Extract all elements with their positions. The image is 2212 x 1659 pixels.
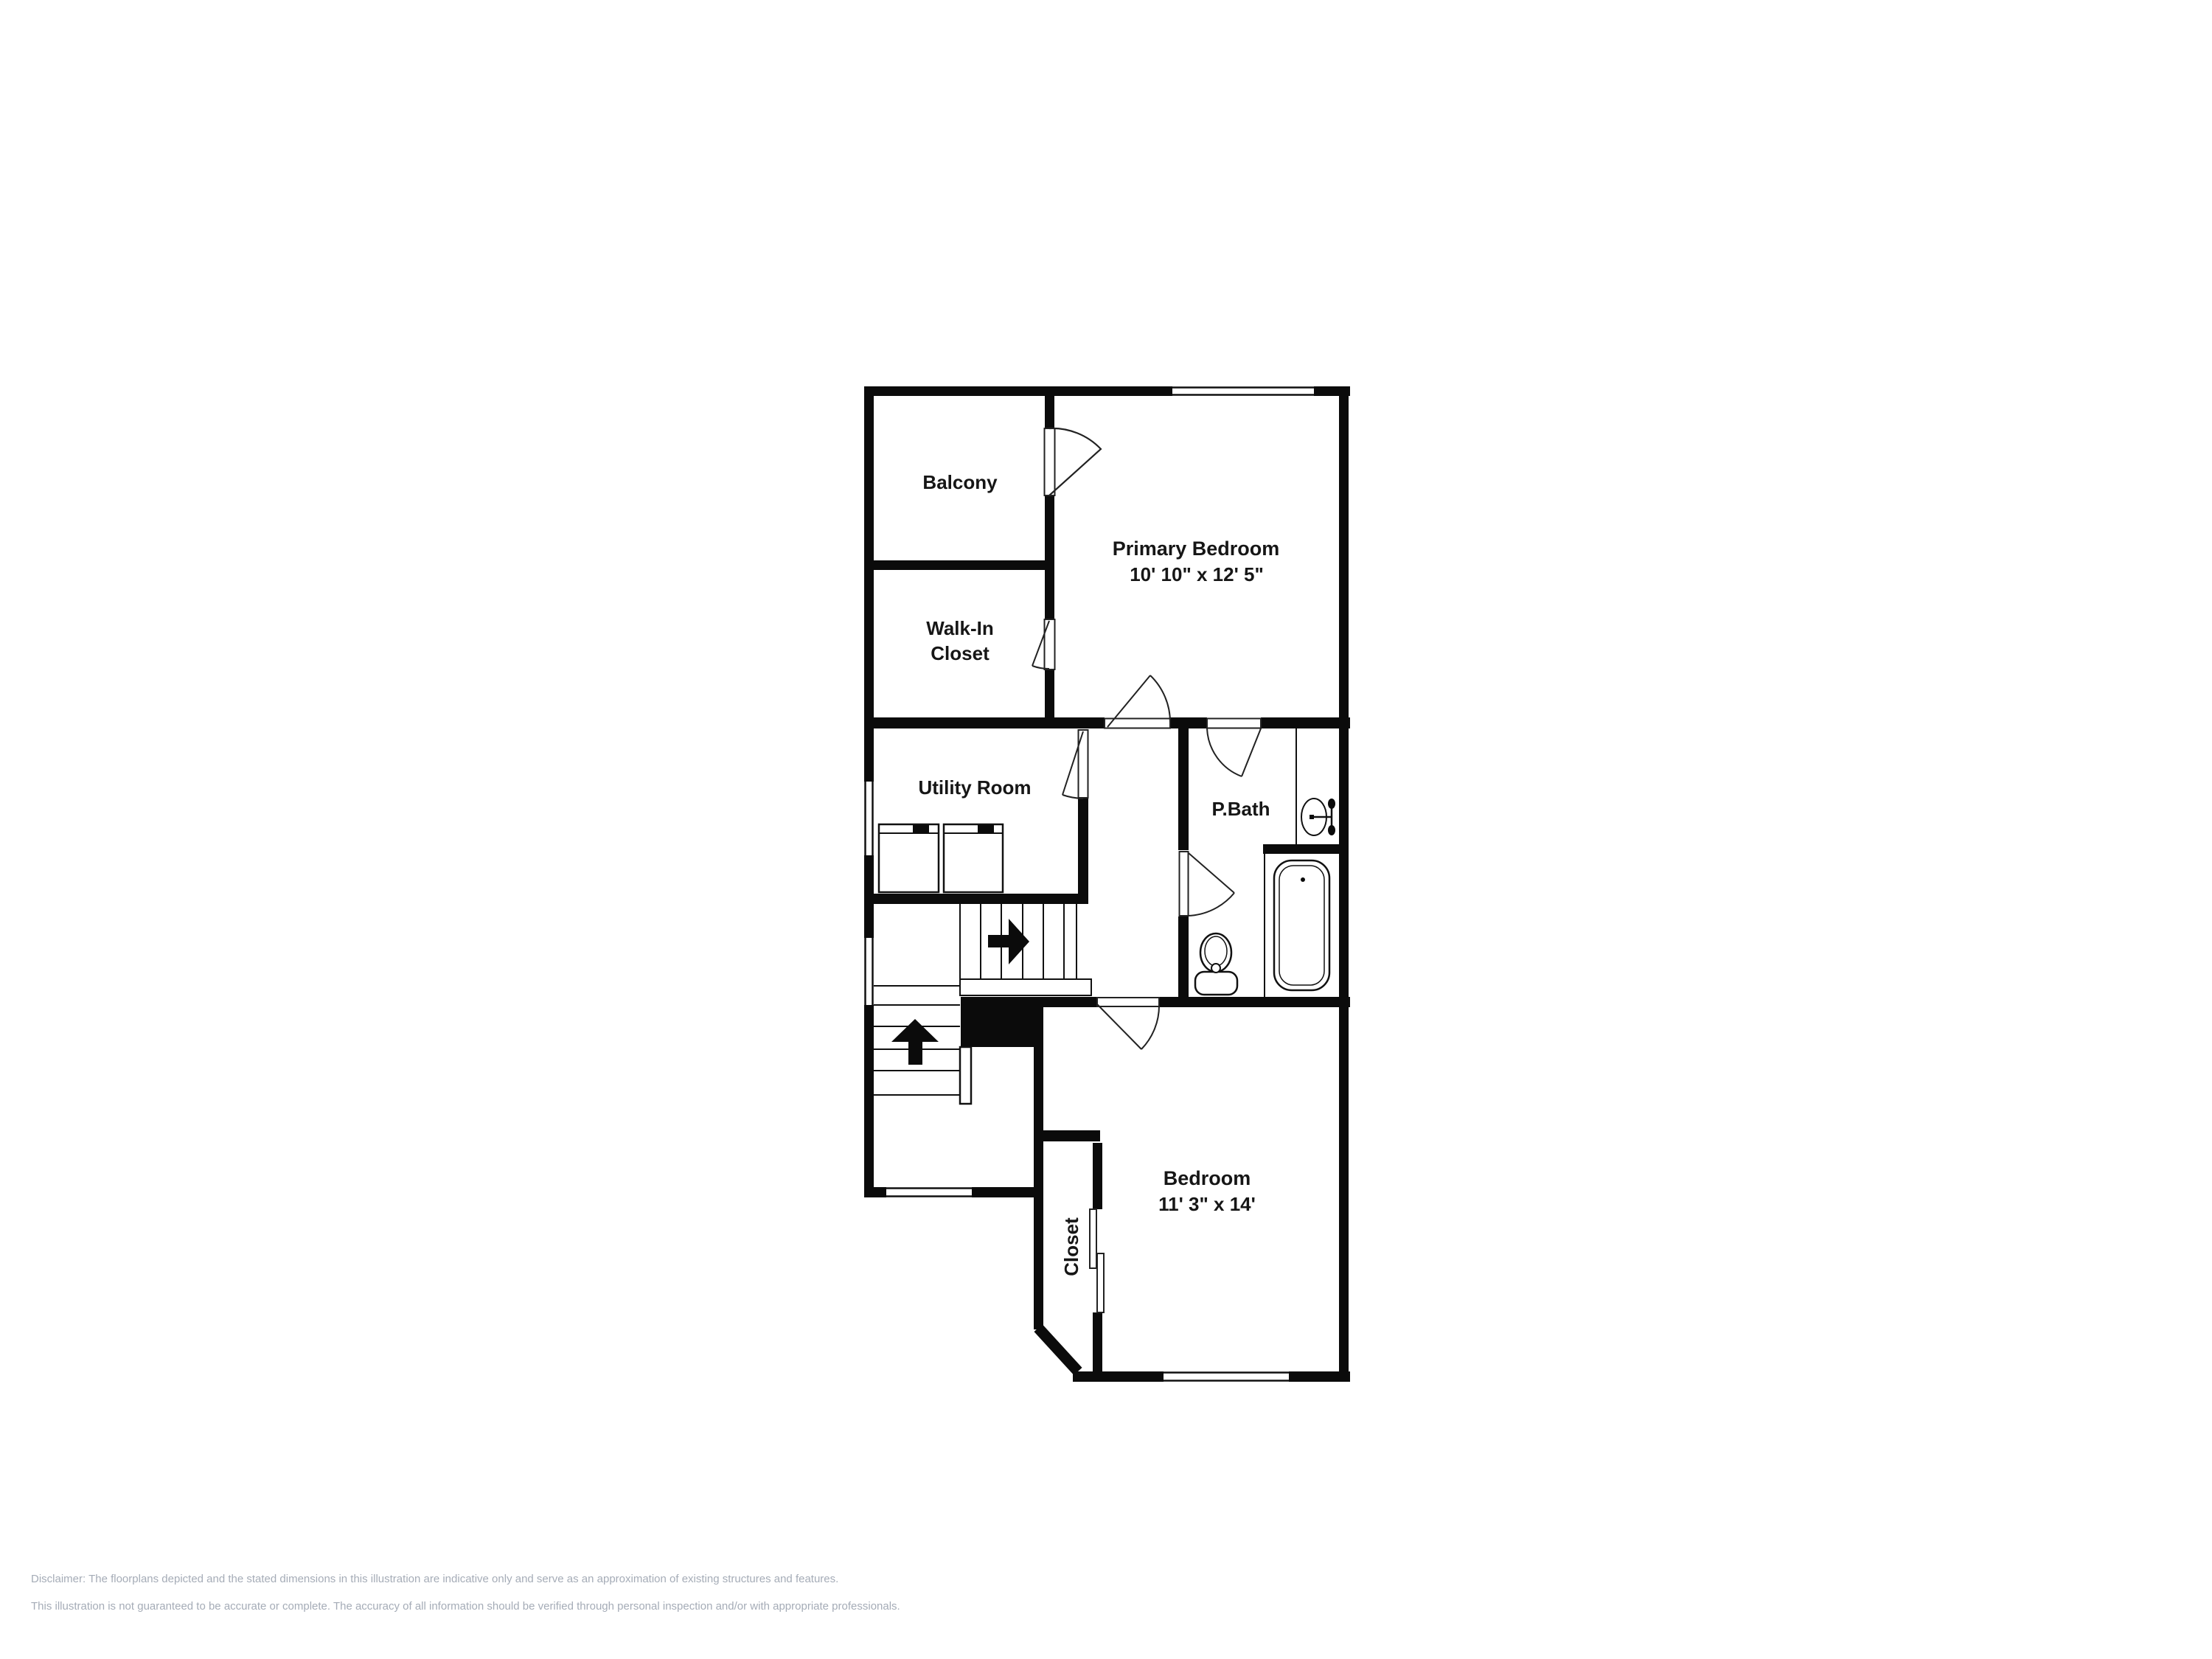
stairs-landing <box>960 979 1091 995</box>
dryer-icon <box>944 824 1003 892</box>
window <box>866 782 873 855</box>
wall <box>1178 917 1189 1007</box>
balcony-door <box>1045 428 1102 495</box>
wall <box>1093 1312 1102 1372</box>
primary-bedroom-dimensions: 10' 10" x 12' 5" <box>1130 563 1264 585</box>
window <box>866 938 873 1005</box>
wall <box>864 386 1172 396</box>
diagonal-wall <box>1038 1328 1078 1371</box>
utility-room-door <box>1062 730 1088 799</box>
primary-bath-hall-door <box>1180 852 1235 916</box>
floorplan-page: { "floorplan": { "wall_color": "#0b0b0b"… <box>0 0 2212 1659</box>
wall <box>1045 386 1054 428</box>
wall <box>1078 799 1088 904</box>
wall <box>1042 997 1097 1007</box>
primary-bath-door <box>1207 719 1261 777</box>
wall <box>1093 1143 1102 1209</box>
bedroom-door <box>1097 998 1159 1049</box>
wall <box>864 1005 874 1197</box>
primary-bedroom-label: Primary Bedroom <box>1113 538 1280 560</box>
wall <box>864 560 1054 570</box>
wall <box>1289 1371 1350 1382</box>
walk-in-closet-label-line2: Closet <box>931 642 990 664</box>
wall <box>1045 495 1054 619</box>
wall <box>864 894 1088 904</box>
window <box>886 1189 972 1197</box>
wall <box>1043 1130 1100 1141</box>
floor-plan: Balcony Primary Bedroom 10' 10" x 12' 5"… <box>0 0 2212 1659</box>
wall <box>1034 1007 1043 1329</box>
bedroom-label: Bedroom <box>1164 1167 1251 1189</box>
utility-room-label: Utility Room <box>918 776 1031 799</box>
wall <box>1170 717 1207 728</box>
sink-icon <box>1301 799 1335 835</box>
wall <box>1045 669 1054 717</box>
disclaimer-line-1: Disclaimer: The floorplans depicted and … <box>31 1573 838 1585</box>
closet-label: Closet <box>1060 1217 1082 1276</box>
wall <box>1263 844 1339 854</box>
fixtures <box>879 728 1335 997</box>
wall <box>961 997 1042 1047</box>
stair-half-wall <box>960 1047 971 1104</box>
walk-in-closet-label-line1: Walk-In <box>926 617 993 639</box>
wall <box>1159 997 1350 1007</box>
bedroom-dimensions: 11' 3" x 14' <box>1158 1193 1256 1215</box>
toilet-icon <box>1195 933 1237 995</box>
wall <box>972 1187 1043 1197</box>
wall <box>1073 1371 1164 1382</box>
balcony-label: Balcony <box>922 471 998 493</box>
closet-bypass-door <box>1090 1209 1104 1312</box>
washer-icon <box>879 824 939 892</box>
wall <box>1178 728 1189 850</box>
primary-bath-label: P.Bath <box>1212 798 1270 820</box>
window <box>1172 388 1314 395</box>
wall <box>1261 717 1350 728</box>
wall <box>1339 386 1349 1382</box>
bathtub-icon <box>1274 860 1329 990</box>
window <box>1164 1373 1289 1381</box>
disclaimer-line-2: This illustration is not guaranteed to b… <box>31 1601 900 1612</box>
primary-bedroom-door <box>1105 675 1170 728</box>
wall <box>864 1187 886 1197</box>
wall <box>864 717 1105 728</box>
walk-in-closet-door <box>1032 619 1055 669</box>
